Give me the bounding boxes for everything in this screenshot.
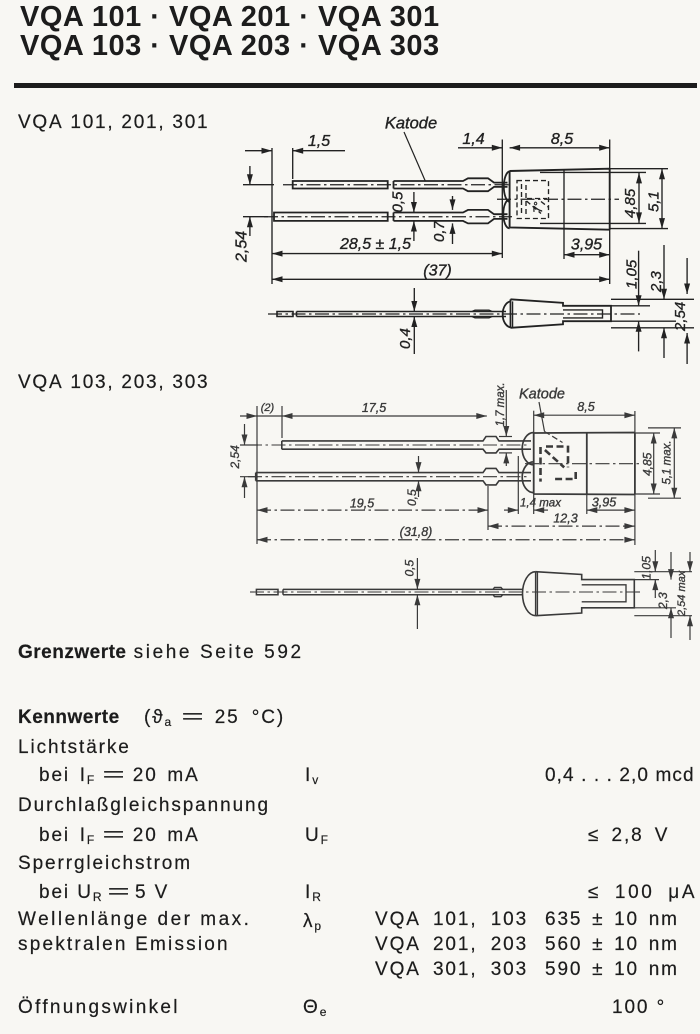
svg-text:7°: 7°: [531, 201, 545, 213]
svg-text:0,5: 0,5: [403, 559, 417, 576]
svg-text:0,4: 0,4: [397, 328, 414, 349]
svg-text:2,54: 2,54: [672, 302, 689, 332]
svg-text:5,1 max.: 5,1 max.: [662, 440, 674, 484]
svg-text:1,05: 1,05: [624, 259, 641, 289]
svg-text:12,3: 12,3: [553, 512, 577, 526]
svg-text:3,95: 3,95: [592, 496, 616, 510]
svg-text:5,1: 5,1: [646, 191, 663, 212]
svg-text:1,05: 1,05: [640, 556, 654, 580]
svg-text:2,54: 2,54: [228, 445, 242, 470]
svg-text:3,95: 3,95: [571, 237, 602, 254]
svg-text:2,54: 2,54: [234, 231, 251, 263]
svg-text:1,5: 1,5: [308, 133, 330, 150]
svg-text:Katode: Katode: [519, 387, 565, 403]
svg-text:8,5: 8,5: [577, 400, 594, 414]
svg-text:0,5: 0,5: [405, 489, 419, 506]
svg-text:(31,8): (31,8): [400, 525, 433, 539]
svg-text:0,5: 0,5: [390, 191, 407, 213]
svg-text:(2): (2): [261, 402, 275, 414]
svg-text:17,5: 17,5: [362, 401, 386, 415]
svg-text:0,7: 0,7: [431, 220, 448, 242]
svg-text:2,3: 2,3: [656, 592, 670, 610]
svg-text:1,7 max.: 1,7 max.: [495, 382, 507, 426]
svg-text:2,3: 2,3: [648, 270, 665, 293]
svg-text:1,4 max: 1,4 max: [520, 498, 562, 510]
svg-text:8,5: 8,5: [551, 131, 573, 148]
svg-text:2,54 max: 2,54 max: [676, 570, 688, 617]
svg-text:4,85: 4,85: [622, 188, 639, 218]
svg-text:(37): (37): [423, 263, 451, 280]
svg-text:4,85: 4,85: [641, 452, 655, 476]
svg-text:28,5 ± 1,5: 28,5 ± 1,5: [339, 236, 411, 253]
svg-text:Katode: Katode: [385, 115, 437, 133]
svg-text:19,5: 19,5: [350, 497, 374, 511]
svg-text:1,4: 1,4: [462, 131, 484, 148]
